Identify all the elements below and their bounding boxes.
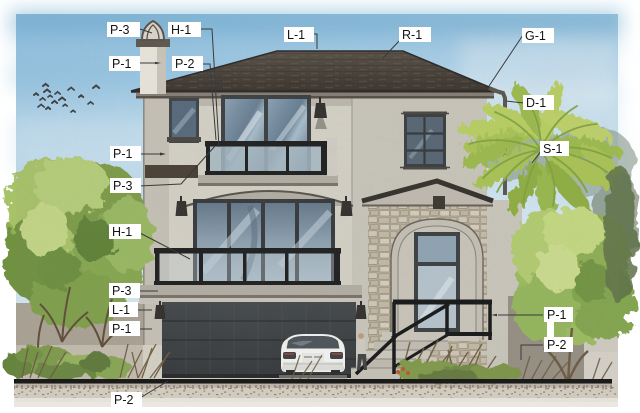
svg-text:H-1: H-1 <box>171 23 191 37</box>
svg-text:S-1: S-1 <box>543 142 563 156</box>
svg-text:P-3: P-3 <box>112 284 132 298</box>
svg-text:R-1: R-1 <box>402 28 422 42</box>
svg-text:G-1: G-1 <box>525 29 546 43</box>
svg-text:D-1: D-1 <box>526 96 546 110</box>
svg-text:P-2: P-2 <box>114 393 134 407</box>
svg-text:P-2: P-2 <box>547 338 567 352</box>
svg-text:P-1: P-1 <box>112 322 132 336</box>
svg-text:H-1: H-1 <box>112 225 132 239</box>
svg-text:P-3: P-3 <box>110 23 130 37</box>
svg-text:P-1: P-1 <box>547 308 567 322</box>
svg-text:P-1: P-1 <box>113 147 133 161</box>
svg-text:P-2: P-2 <box>175 57 195 71</box>
svg-text:P-3: P-3 <box>113 179 133 193</box>
svg-text:P-1: P-1 <box>112 57 132 71</box>
svg-text:L-1: L-1 <box>112 303 130 317</box>
svg-text:L-1: L-1 <box>287 28 305 42</box>
